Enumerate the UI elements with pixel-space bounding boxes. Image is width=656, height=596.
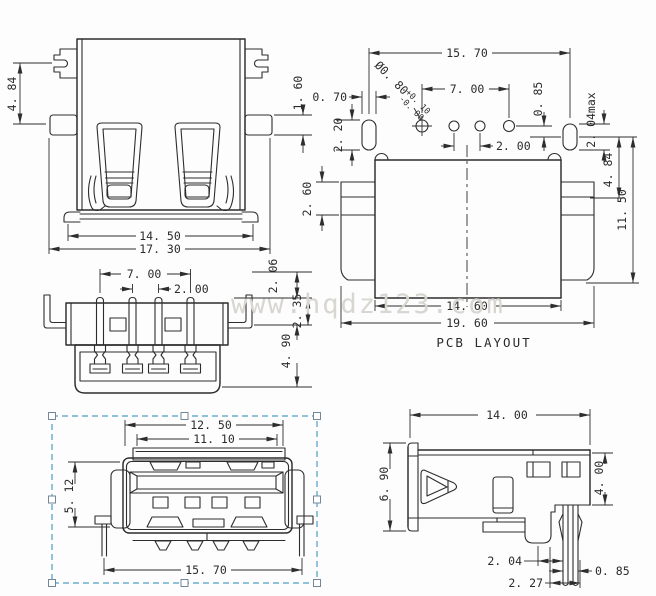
dim-label: 11. 50 <box>615 189 629 231</box>
dim-label: 14. 00 <box>486 408 528 422</box>
flange-right <box>245 115 272 135</box>
front-view-shell <box>50 39 272 222</box>
dim-label: 2. 04max <box>584 92 598 147</box>
dim-side-204: 2. 04 <box>487 546 563 568</box>
mount-ear-left <box>54 49 77 78</box>
dim-side-1400: 14. 00 <box>410 408 590 445</box>
pcb-tab-left <box>341 182 375 280</box>
flange-left <box>50 115 77 135</box>
callout-hole-diameter: Ø0. 80 +0. 10 -0. 00 <box>368 58 433 123</box>
dim-pcb-200: 2. 00 <box>441 133 531 153</box>
dim-pcb-220: 2. 20 <box>331 104 360 166</box>
front-view: 4. 84 1. 60 14. 50 17. 30 <box>5 39 312 256</box>
dim-label: 2. 60 <box>300 182 314 217</box>
dim-label: 14. 50 <box>139 229 181 243</box>
dim-front-160: 1. 60 <box>274 76 312 153</box>
flange-right <box>285 470 304 528</box>
dim-pcb-700: 7. 00 <box>422 82 509 118</box>
foot-right <box>242 212 258 222</box>
dim-label: 0. 85 <box>531 82 545 117</box>
selection-handle[interactable] <box>314 580 321 587</box>
dim-side-085: 0. 85 <box>549 564 630 578</box>
pin-1 <box>90 298 110 374</box>
solder-pins <box>559 505 582 586</box>
dim-side-400: 4. 00 <box>592 453 613 505</box>
dim-label: 6. 90 <box>377 467 391 502</box>
dim-label: 4. 00 <box>592 461 606 496</box>
hole-4 <box>504 121 515 132</box>
dim-label: 12. 50 <box>190 418 232 432</box>
pin-3 <box>149 298 169 374</box>
side-tab-left <box>95 516 111 524</box>
dim-label: 4. 90 <box>279 334 293 369</box>
hole-3 <box>475 121 485 131</box>
dim-bottom-490: 4. 90 <box>222 325 312 387</box>
dim-label: 2. 00 <box>496 139 531 153</box>
solder-tab-left <box>44 295 66 328</box>
mount-leg <box>525 512 555 543</box>
dim-label: 7. 00 <box>450 82 485 96</box>
dim-bottom-200: 2. 00 <box>120 282 209 296</box>
selection-handle[interactable] <box>181 413 188 420</box>
dim-pcb-260: 2. 60 <box>300 166 339 231</box>
flange-left <box>111 470 130 528</box>
pad-right <box>563 124 577 150</box>
dim-label: 2. 04 <box>487 554 522 568</box>
side-tab-right <box>297 516 313 524</box>
selection-handle[interactable] <box>49 413 56 420</box>
tongue-slot <box>130 472 283 493</box>
dim-front-484: 4. 84 <box>5 63 52 124</box>
dim-label: 4. 84 <box>5 77 19 112</box>
selection-handle[interactable] <box>314 496 321 503</box>
dim-label: 15. 70 <box>185 563 227 577</box>
bottom-pin-view: 7. 00 2. 00 2. 06 2. 35 4. 90 <box>44 259 312 393</box>
dim-label: 2. 20 <box>331 118 345 153</box>
pcb-body-outline <box>341 145 594 307</box>
pin-2 <box>123 298 143 374</box>
pcb-layout-title: PCB LAYOUT <box>436 335 531 350</box>
contact-window-right <box>175 123 220 207</box>
dim-pcb-070: 0. 70 <box>312 90 390 114</box>
selection-handle[interactable] <box>49 580 56 587</box>
contact-window-left <box>97 123 142 207</box>
foot-left <box>64 212 80 222</box>
hole-2 <box>449 121 459 131</box>
watermark: www.hqdz123.com <box>231 289 505 320</box>
dim-label: 2. 00 <box>174 282 209 296</box>
dim-label: 0. 85 <box>595 564 630 578</box>
pin-housing <box>66 303 228 393</box>
dim-top-1110: 11. 10 <box>137 432 277 446</box>
pin-4 <box>181 298 201 374</box>
top-view: 12. 50 11. 10 5. 12 15. 70 <box>49 413 321 587</box>
dim-top-1570: 15. 70 <box>104 558 302 577</box>
pcb-pads-and-holes <box>362 116 577 150</box>
selection-handle[interactable] <box>314 413 321 420</box>
dim-front-1450: 14. 50 <box>68 224 253 243</box>
dim-label: 0. 70 <box>312 90 347 104</box>
side-view: 14. 00 6. 90 4. 00 2. 04 0. 85 <box>377 408 630 590</box>
dim-label: 2. 27 <box>508 576 543 590</box>
dim-label: 11. 10 <box>193 432 235 446</box>
mount-ear-right <box>245 49 268 78</box>
hook-right <box>217 176 234 211</box>
dim-label: 7. 00 <box>127 267 162 281</box>
dim-label: 15. 70 <box>446 46 488 60</box>
dim-label: 1. 60 <box>291 76 305 111</box>
dim-label: 5. 12 <box>62 479 76 514</box>
pcb-tab-right <box>561 182 594 280</box>
pad-left <box>362 120 376 150</box>
selection-handle[interactable] <box>181 580 188 587</box>
dim-side-690: 6. 90 <box>377 443 406 531</box>
dim-label: 17. 30 <box>139 242 181 256</box>
selection-handle[interactable] <box>49 496 56 503</box>
top-view-body <box>95 448 313 556</box>
dim-label: 4. 84 <box>601 153 615 188</box>
latch-spring <box>421 470 457 504</box>
drawing-canvas: 4. 84 1. 60 14. 50 17. 30 <box>0 0 656 596</box>
